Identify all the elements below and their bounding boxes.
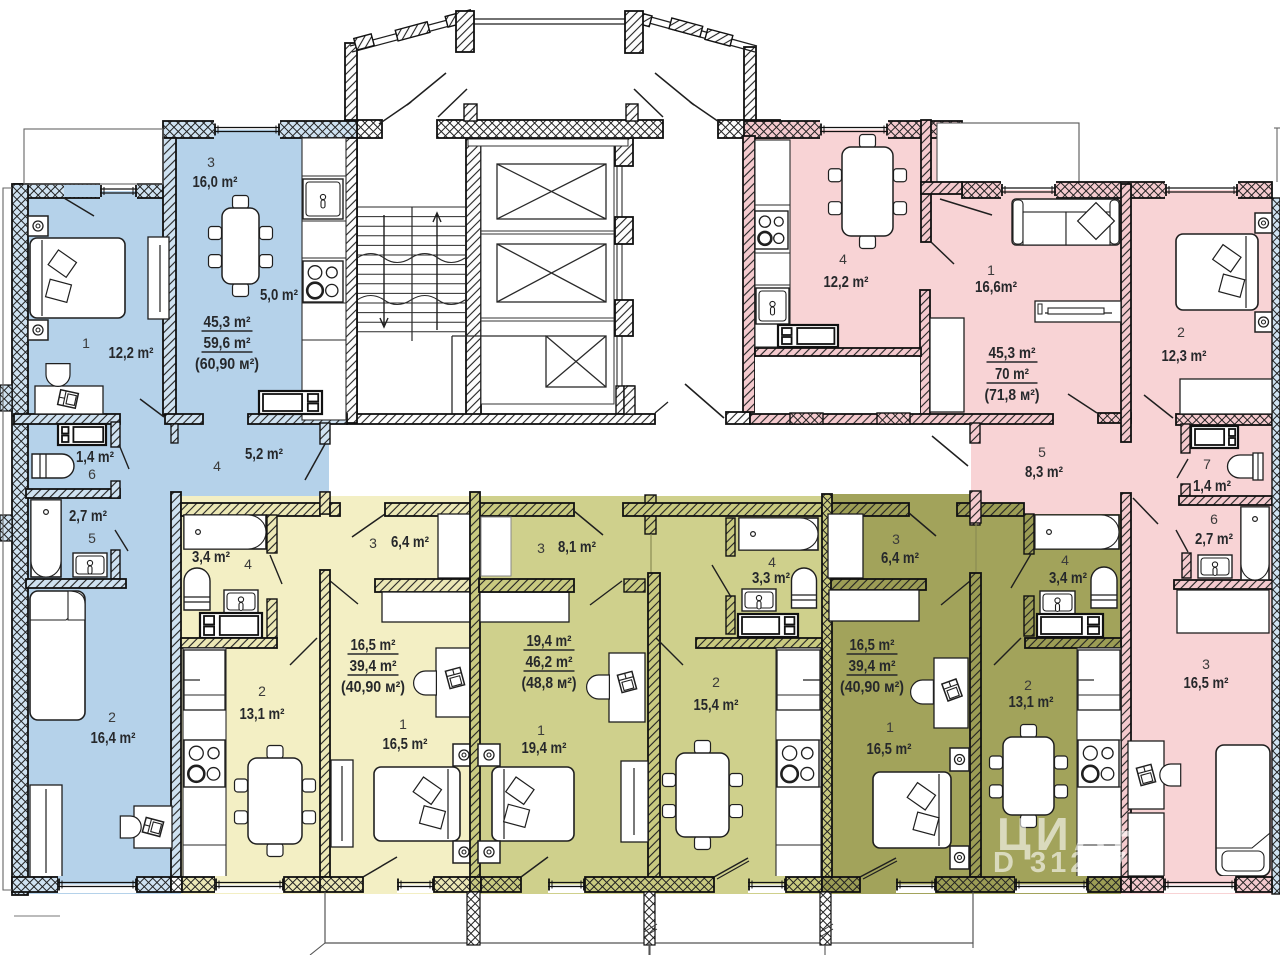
svg-text:2: 2: [1177, 324, 1185, 340]
svg-text:(40,90 м²): (40,90 м²): [341, 679, 405, 696]
svg-text:13,1 m²: 13,1 m²: [1009, 694, 1054, 711]
svg-text:39,4 m²: 39,4 m²: [350, 658, 397, 675]
svg-text:3: 3: [892, 531, 900, 547]
svg-text:70 m²: 70 m²: [995, 366, 1029, 383]
svg-text:(48,8 м²): (48,8 м²): [522, 675, 577, 692]
svg-text:(71,8 м²): (71,8 м²): [985, 387, 1040, 404]
svg-text:19,4 m²: 19,4 m²: [527, 633, 572, 650]
svg-text:12,3 m²: 12,3 m²: [1162, 348, 1207, 365]
svg-text:2,7 m²: 2,7 m²: [1195, 531, 1233, 548]
svg-text:16,5 m²: 16,5 m²: [850, 637, 895, 654]
svg-text:6,4 m²: 6,4 m²: [881, 550, 919, 567]
svg-text:16,4 m²: 16,4 m²: [91, 730, 136, 747]
svg-text:13,1 m²: 13,1 m²: [240, 706, 285, 723]
svg-text:1: 1: [537, 722, 545, 738]
svg-text:1: 1: [399, 716, 407, 732]
svg-text:1: 1: [886, 719, 894, 735]
svg-text:12,2 m²: 12,2 m²: [109, 345, 154, 362]
svg-text:39,4 m²: 39,4 m²: [849, 658, 896, 675]
svg-text:3: 3: [537, 540, 545, 556]
svg-text:2: 2: [1024, 677, 1032, 693]
svg-text:3,4 m²: 3,4 m²: [1049, 570, 1087, 587]
svg-text:2,7 m²: 2,7 m²: [69, 508, 107, 525]
svg-text:4: 4: [839, 251, 847, 267]
svg-text:45,3 m²: 45,3 m²: [204, 314, 251, 331]
svg-text:(40,90 м²): (40,90 м²): [840, 679, 904, 696]
svg-text:3: 3: [1202, 656, 1210, 672]
svg-text:3,4 m²: 3,4 m²: [192, 549, 230, 566]
svg-text:(60,90 м²): (60,90 м²): [195, 356, 259, 373]
svg-text:8,3 m²: 8,3 m²: [1025, 464, 1063, 481]
svg-text:3,3 m²: 3,3 m²: [752, 570, 790, 587]
svg-text:4: 4: [213, 458, 221, 474]
svg-text:46,2 m²: 46,2 m²: [526, 654, 573, 671]
svg-text:2: 2: [712, 674, 720, 690]
svg-text:6,4 m²: 6,4 m²: [391, 534, 429, 551]
svg-text:19,4 m²: 19,4 m²: [522, 740, 567, 757]
svg-text:6: 6: [1210, 511, 1218, 527]
svg-text:1: 1: [82, 335, 90, 351]
svg-text:6: 6: [88, 466, 96, 482]
svg-text:5,0 m²: 5,0 m²: [260, 287, 298, 304]
svg-text:5,2 m²: 5,2 m²: [245, 446, 283, 463]
svg-text:5: 5: [1038, 444, 1046, 460]
svg-text:1,4 m²: 1,4 m²: [76, 449, 114, 466]
svg-text:16,5 m²: 16,5 m²: [351, 637, 396, 654]
svg-text:16,5 m²: 16,5 m²: [383, 736, 428, 753]
svg-text:59,6 m²: 59,6 m²: [204, 335, 251, 352]
svg-text:1,4 m²: 1,4 m²: [1193, 478, 1231, 495]
svg-text:1: 1: [987, 262, 995, 278]
svg-text:3: 3: [207, 154, 215, 170]
svg-text:16,5 m²: 16,5 m²: [1184, 675, 1229, 692]
svg-text:15,4 m²: 15,4 m²: [694, 697, 739, 714]
svg-text:4: 4: [768, 554, 776, 570]
svg-text:2: 2: [108, 709, 116, 725]
svg-text:7: 7: [1203, 456, 1211, 472]
svg-text:D 31257: D 31257: [993, 847, 1131, 879]
svg-text:4: 4: [1061, 552, 1069, 568]
svg-text:8,1 m²: 8,1 m²: [558, 539, 596, 556]
svg-text:16,6m²: 16,6m²: [975, 279, 1017, 296]
svg-text:2: 2: [258, 683, 266, 699]
svg-text:4: 4: [244, 556, 252, 572]
svg-text:12,2 m²: 12,2 m²: [824, 274, 869, 291]
svg-text:16,5 m²: 16,5 m²: [867, 741, 912, 758]
svg-text:16,0 m²: 16,0 m²: [193, 174, 238, 191]
svg-text:45,3 m²: 45,3 m²: [989, 345, 1036, 362]
svg-text:3: 3: [369, 535, 377, 551]
svg-text:5: 5: [88, 530, 96, 546]
